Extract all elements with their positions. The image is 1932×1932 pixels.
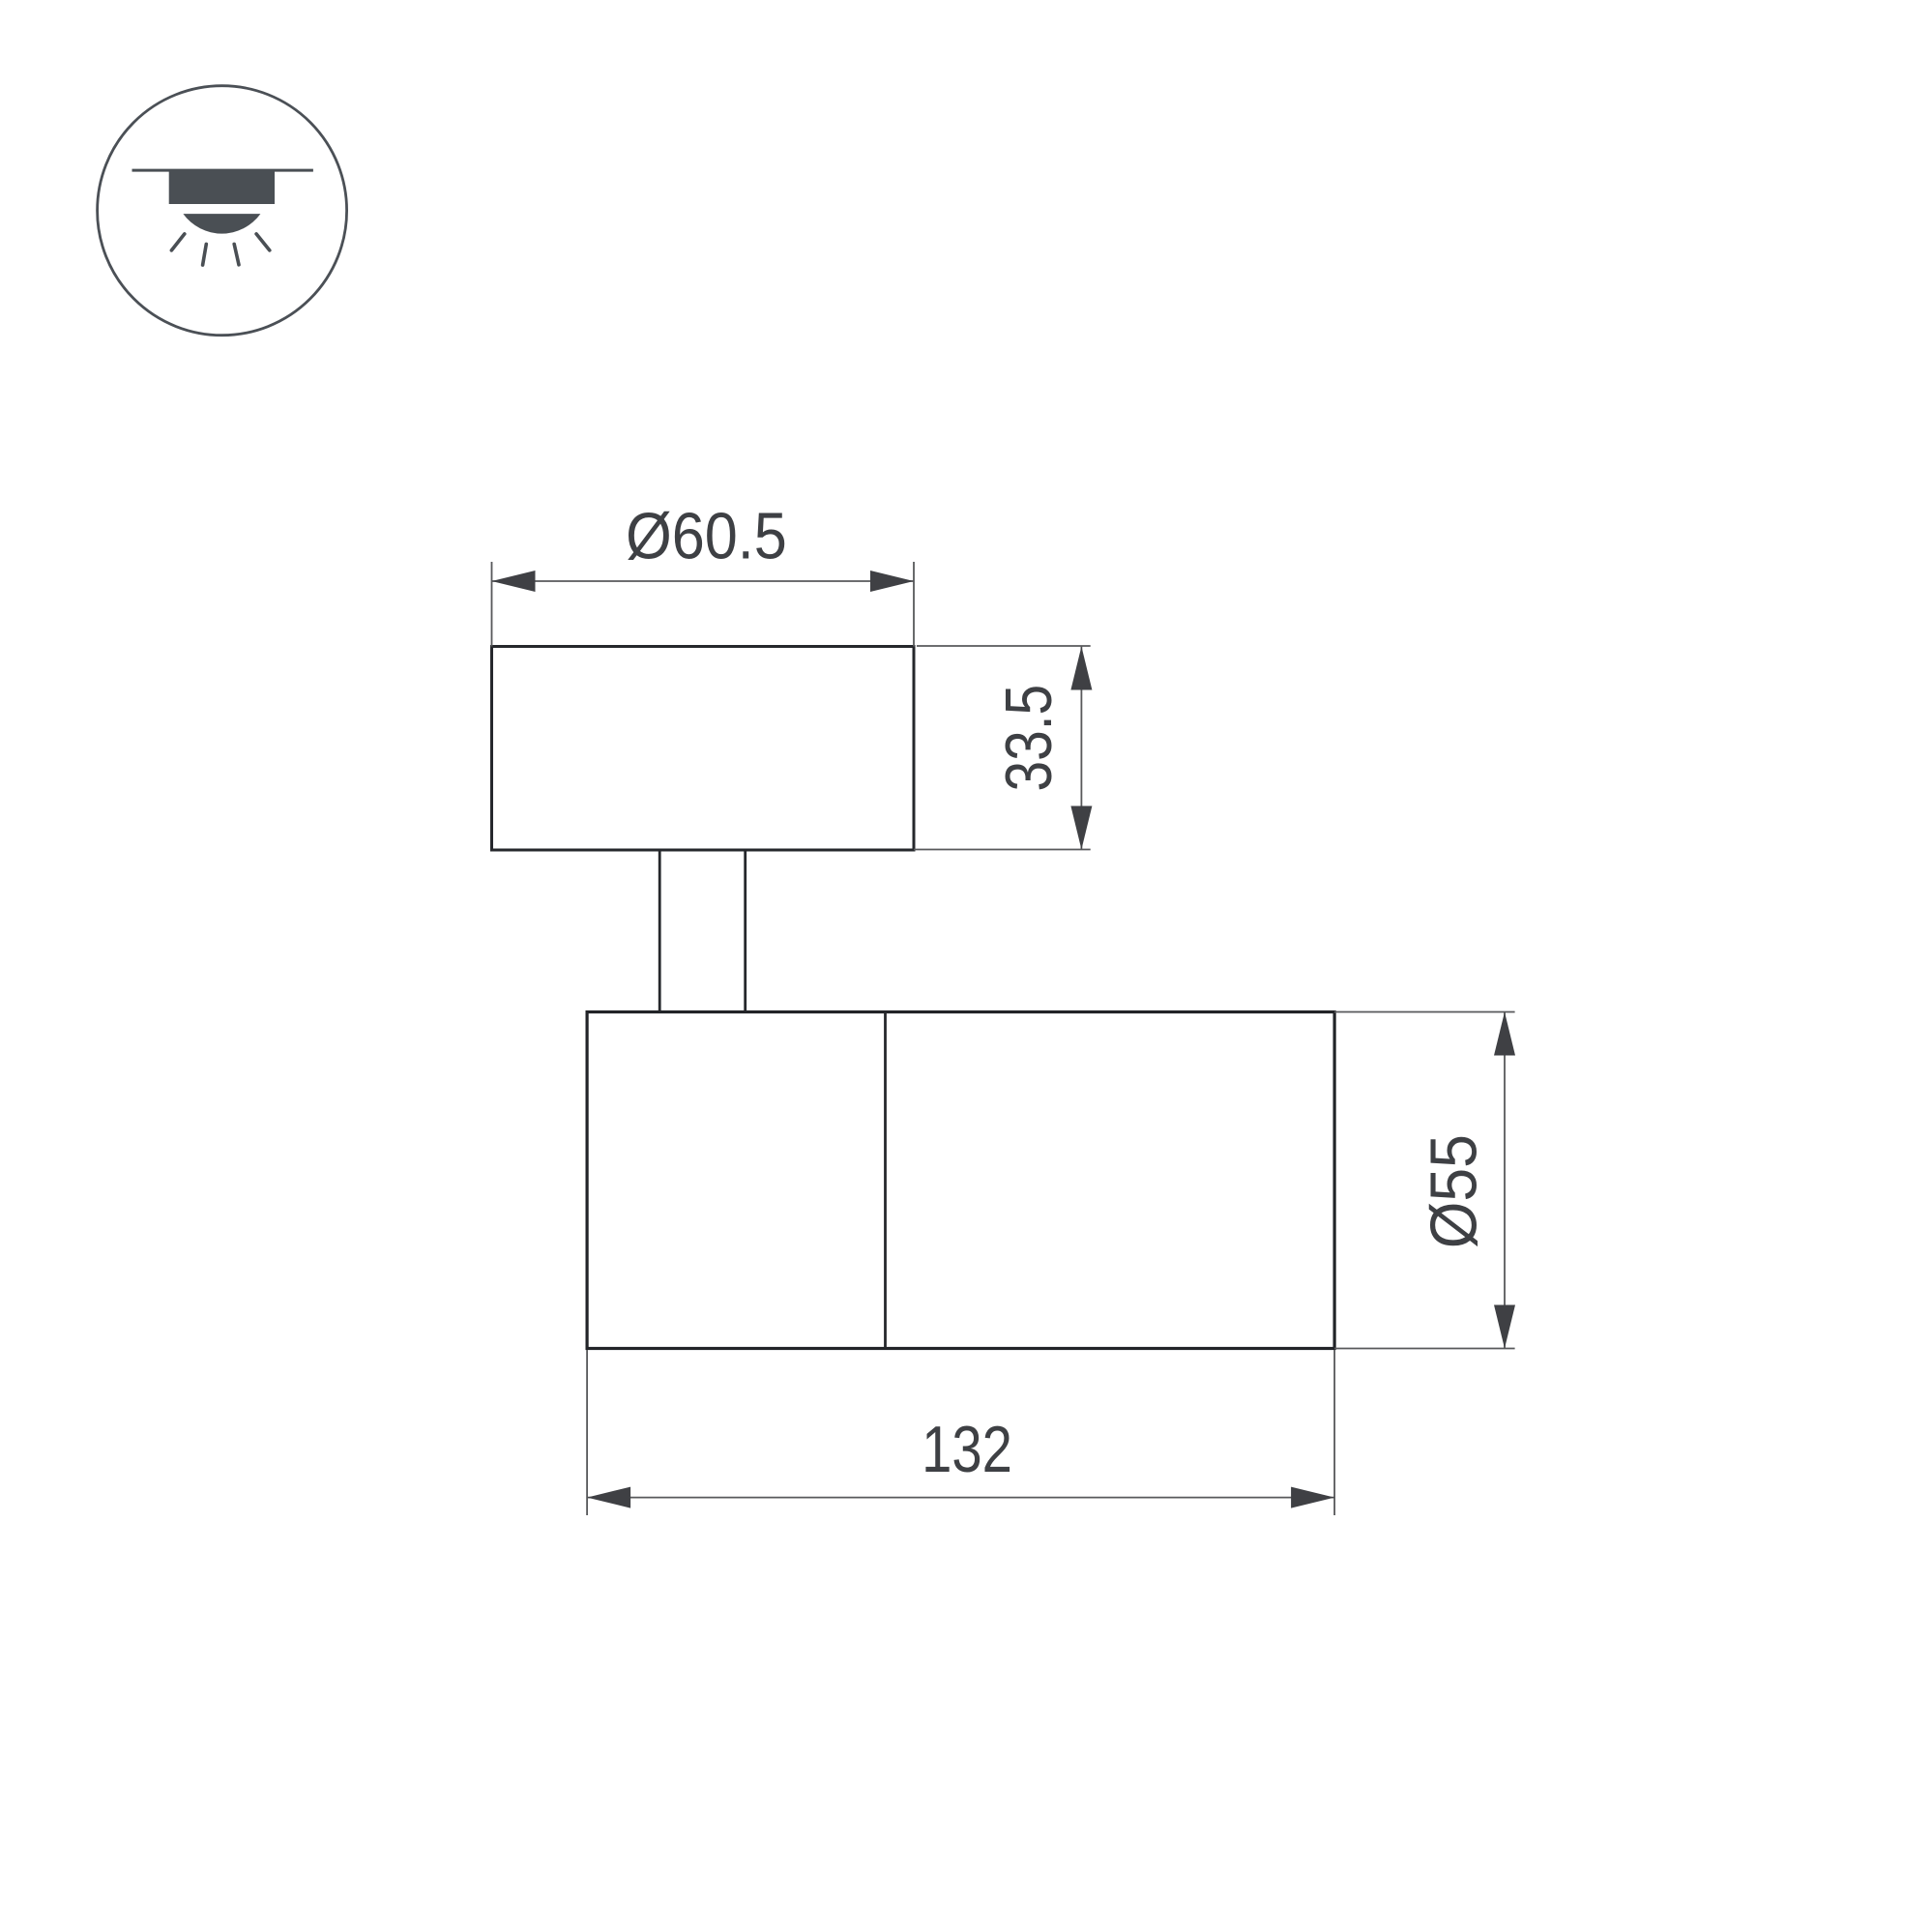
svg-text:132: 132: [922, 1414, 1012, 1486]
svg-text:33.5: 33.5: [992, 685, 1066, 792]
svg-text:Ø55: Ø55: [1417, 1134, 1490, 1248]
svg-text:Ø60.5: Ø60.5: [626, 498, 787, 572]
